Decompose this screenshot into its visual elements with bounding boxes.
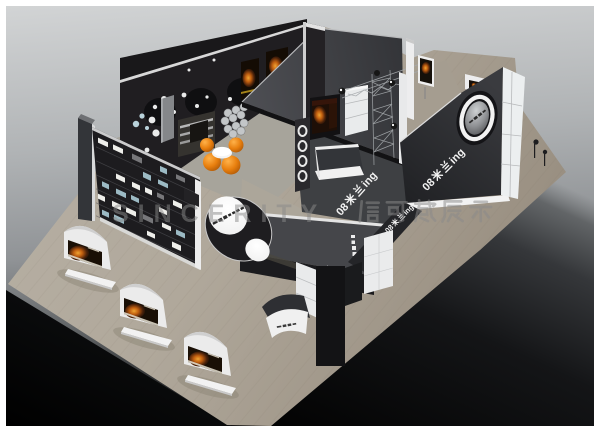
svg-text:SINCERITY: SINCERITY — [112, 200, 326, 228]
